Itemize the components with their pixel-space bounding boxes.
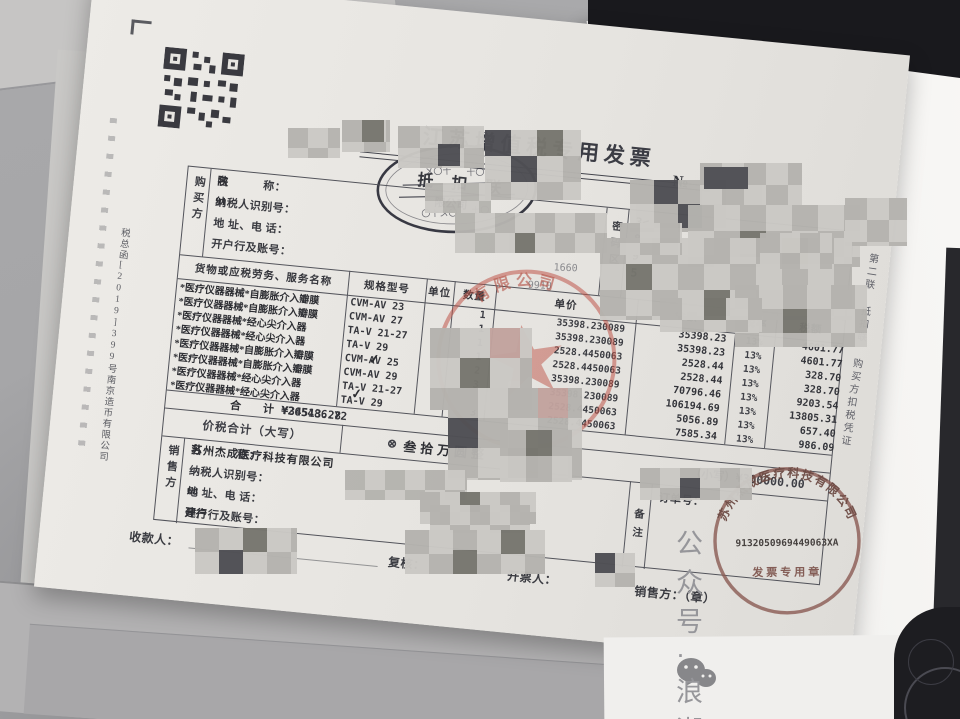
svg-text:发票专用章: 发票专用章 bbox=[751, 565, 822, 579]
censored-block bbox=[485, 130, 511, 156]
censored-block bbox=[704, 298, 726, 320]
pen-checkmark: ✓ bbox=[351, 386, 363, 403]
censored-block bbox=[501, 530, 525, 554]
buyer-name-value: 陕 bbox=[217, 173, 230, 190]
censored-block bbox=[362, 120, 384, 142]
censored-block bbox=[438, 144, 460, 166]
censored-region bbox=[700, 163, 802, 205]
censored-block bbox=[490, 328, 520, 358]
sum-symbol: ⊗ bbox=[386, 435, 398, 452]
censored-block bbox=[726, 167, 748, 189]
photo-scene: 税总函[2019]399号南京造币有限公司 第二联 抵扣联 购买方扣税凭证 江苏… bbox=[0, 0, 960, 719]
censored-block bbox=[243, 528, 267, 552]
censored-region bbox=[425, 183, 491, 213]
censored-block bbox=[448, 418, 478, 448]
seller-side-label: 销售方 bbox=[161, 444, 182, 493]
censored-region bbox=[845, 198, 907, 246]
censored-block bbox=[626, 264, 652, 290]
censored-region bbox=[500, 430, 572, 482]
censored-region bbox=[640, 468, 752, 500]
pen-checkmark: ✓ bbox=[368, 351, 380, 368]
censored-block bbox=[537, 130, 563, 156]
censored-region bbox=[405, 530, 545, 574]
censored-block bbox=[538, 388, 568, 418]
censored-block bbox=[595, 553, 615, 573]
censored-block bbox=[453, 550, 477, 574]
censored-region bbox=[660, 298, 762, 332]
svg-text:9132050969449063XA: 9132050969449063XA bbox=[736, 537, 839, 549]
seller-taxid-label: 纳税人识别号： bbox=[188, 462, 270, 486]
censored-region bbox=[760, 233, 832, 269]
censored-region bbox=[342, 120, 390, 152]
censored-block bbox=[704, 167, 726, 189]
censored-region bbox=[455, 213, 607, 253]
censored-block bbox=[783, 309, 807, 333]
seller-bank-value: 建行 bbox=[184, 504, 207, 522]
seller-address-value: 68 bbox=[186, 485, 198, 498]
censored-region bbox=[430, 505, 530, 533]
buyer-bank-label: 开户行及账号： bbox=[211, 235, 293, 259]
column-header: 规格型号 bbox=[347, 275, 426, 298]
censored-block bbox=[460, 358, 490, 388]
censored-block bbox=[511, 156, 537, 182]
qr-code-icon bbox=[157, 47, 244, 134]
payee-label: 收款人： bbox=[129, 527, 180, 549]
remark-side-label: 备注 bbox=[628, 507, 647, 545]
censored-block bbox=[515, 233, 535, 253]
watermark-text: 公众号 · 浪潮新闻 bbox=[676, 522, 718, 719]
censored-region bbox=[195, 528, 297, 574]
svg-text:〸〇: 〸〇 bbox=[466, 167, 484, 177]
watermark: 公众号 · 浪潮新闻 bbox=[676, 652, 718, 696]
censored-region bbox=[595, 553, 635, 587]
buyer-address-label: 地 址、电 话： bbox=[213, 214, 290, 237]
censored-region bbox=[398, 126, 484, 168]
censored-region bbox=[620, 223, 682, 255]
buyer-side-label: 购买方 bbox=[187, 175, 208, 224]
censored-block bbox=[219, 550, 243, 574]
censored-region bbox=[288, 128, 340, 158]
censored-block bbox=[654, 180, 678, 204]
censored-block bbox=[680, 478, 700, 498]
censored-region bbox=[485, 130, 581, 200]
buyer-taxid-value: 91 bbox=[215, 195, 227, 208]
photocopy-corner-mark bbox=[130, 19, 151, 36]
censored-block bbox=[526, 430, 552, 456]
